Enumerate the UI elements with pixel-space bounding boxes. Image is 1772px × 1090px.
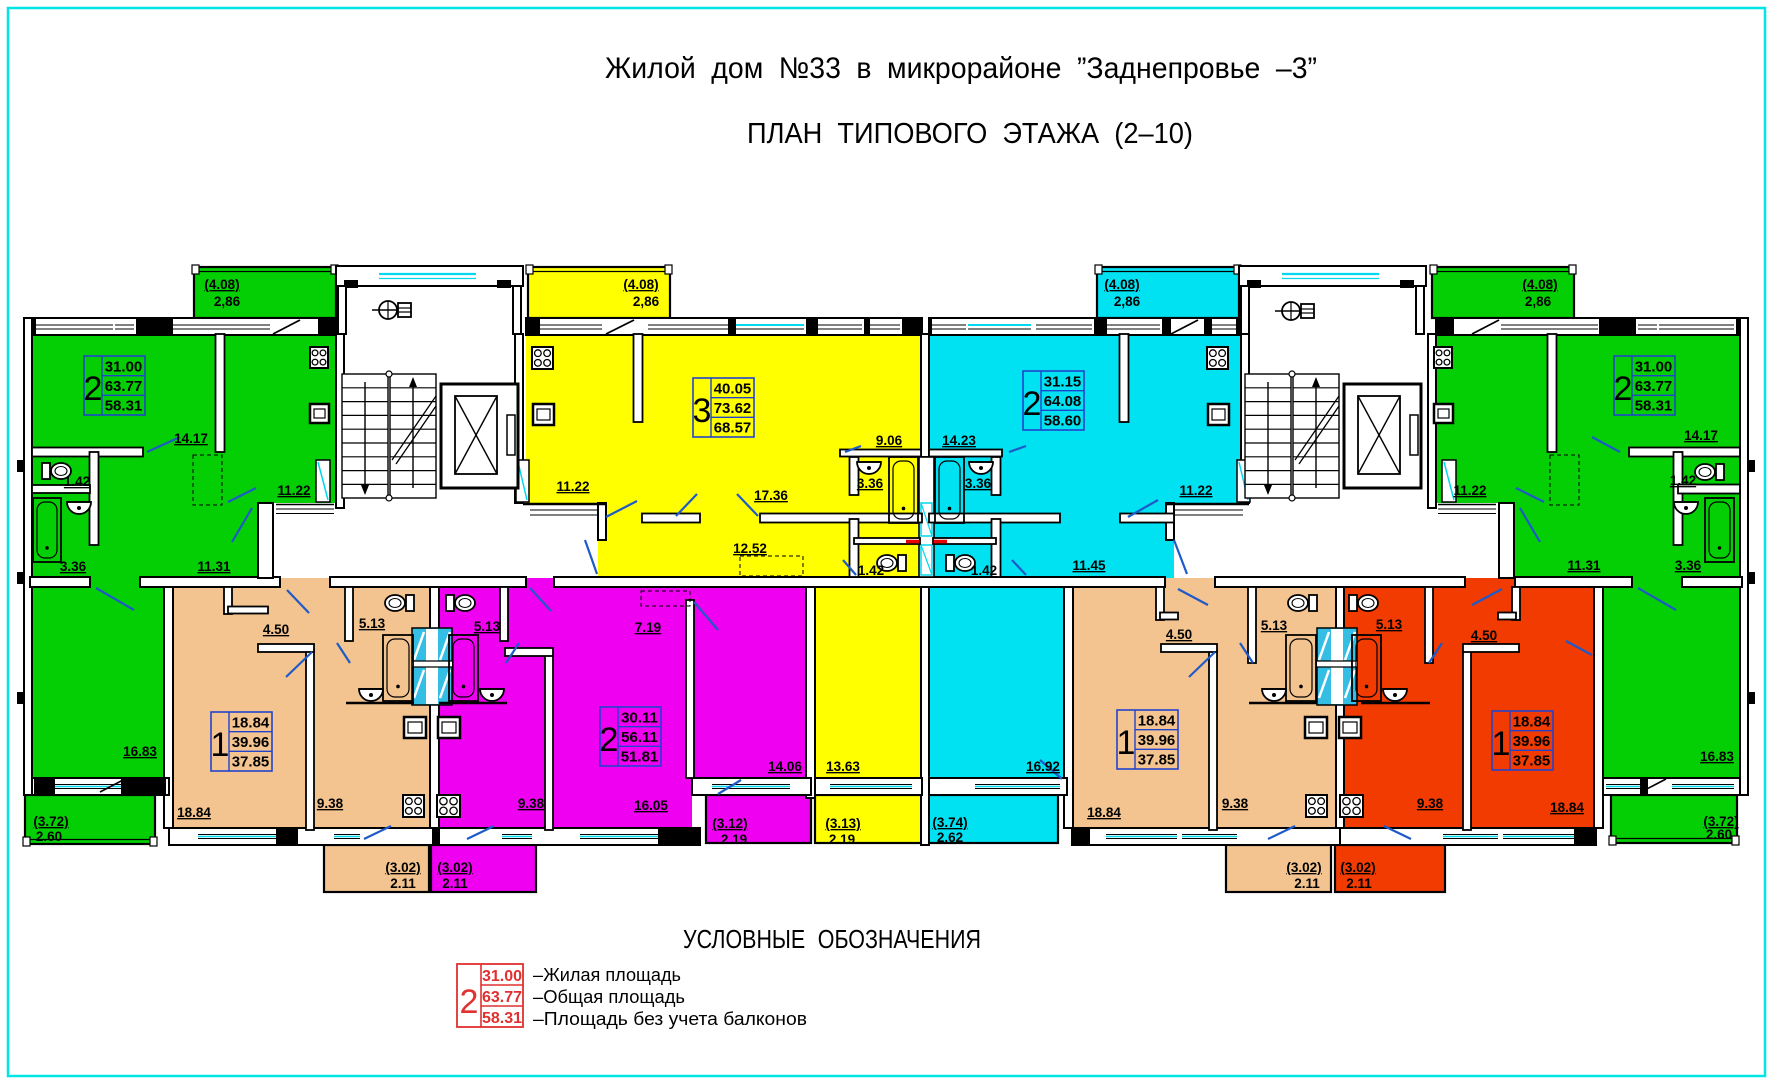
svg-text:(3.02): (3.02) <box>385 860 420 875</box>
svg-text:3.36: 3.36 <box>857 476 884 491</box>
svg-text:(3.02): (3.02) <box>437 860 472 875</box>
svg-text:2.19: 2.19 <box>721 832 747 847</box>
svg-text:17.36: 17.36 <box>754 488 788 503</box>
svg-text:4.50: 4.50 <box>1471 628 1497 643</box>
svg-text:9.06: 9.06 <box>876 433 903 448</box>
svg-text:2.60: 2.60 <box>36 829 62 844</box>
svg-text:31.15: 31.15 <box>1044 374 1082 391</box>
svg-text:1: 1 <box>211 726 230 764</box>
svg-text:37.85: 37.85 <box>232 754 270 771</box>
svg-text:1: 1 <box>1492 725 1511 763</box>
svg-text:39.96: 39.96 <box>1513 733 1551 750</box>
svg-text:63.77: 63.77 <box>1635 378 1673 395</box>
svg-text:2: 2 <box>1023 385 1042 423</box>
svg-text:18.84: 18.84 <box>1138 713 1176 730</box>
svg-text:18.84: 18.84 <box>1087 805 1121 820</box>
svg-text:16.83: 16.83 <box>123 744 157 759</box>
svg-text:63.77: 63.77 <box>105 378 143 395</box>
svg-text:11.45: 11.45 <box>1072 558 1106 573</box>
svg-text:9.38: 9.38 <box>1417 796 1444 811</box>
svg-text:30.11: 30.11 <box>621 710 658 727</box>
svg-text:12.52: 12.52 <box>733 541 767 556</box>
svg-text:13.63: 13.63 <box>826 759 860 774</box>
svg-text:14.23: 14.23 <box>942 433 976 448</box>
svg-text:УСЛОВНЫЕ ОБОЗНАЧЕНИЯ: УСЛОВНЫЕ ОБОЗНАЧЕНИЯ <box>683 924 981 954</box>
svg-text:5.13: 5.13 <box>474 619 501 634</box>
svg-text:1.42: 1.42 <box>1670 473 1696 488</box>
svg-text:1.42: 1.42 <box>64 474 90 489</box>
svg-text:7.19: 7.19 <box>635 620 661 635</box>
svg-text:2.11: 2.11 <box>1346 876 1372 891</box>
svg-text:2.11: 2.11 <box>442 876 468 891</box>
svg-text:2.60: 2.60 <box>1706 827 1732 842</box>
svg-text:58.60: 58.60 <box>1044 413 1082 430</box>
svg-text:16.92: 16.92 <box>1026 759 1060 774</box>
svg-text:11.22: 11.22 <box>1453 483 1486 498</box>
svg-text:–Жилая площадь: –Жилая площадь <box>533 965 681 985</box>
svg-text:58.31: 58.31 <box>105 398 143 415</box>
svg-text:(3.02): (3.02) <box>1340 860 1375 875</box>
svg-text:9.38: 9.38 <box>1222 796 1249 811</box>
svg-text:56.11: 56.11 <box>621 729 658 746</box>
svg-text:2,86: 2,86 <box>1525 294 1552 309</box>
svg-text:73.62: 73.62 <box>714 400 752 417</box>
svg-text:16.83: 16.83 <box>1700 749 1734 764</box>
svg-text:2: 2 <box>600 721 619 759</box>
svg-text:–Общая площадь: –Общая площадь <box>533 987 685 1007</box>
svg-text:4.50: 4.50 <box>1166 627 1192 642</box>
svg-text:2.11: 2.11 <box>1294 876 1320 891</box>
svg-text:37.85: 37.85 <box>1138 752 1176 769</box>
svg-text:64.08: 64.08 <box>1044 393 1082 410</box>
svg-text:5.13: 5.13 <box>359 616 386 631</box>
svg-text:(3.72): (3.72) <box>33 814 68 829</box>
svg-text:14.17: 14.17 <box>174 431 208 446</box>
svg-text:18.84: 18.84 <box>177 805 211 820</box>
svg-text:2: 2 <box>84 370 103 408</box>
svg-text:58.31: 58.31 <box>482 1010 522 1027</box>
svg-text:31.00: 31.00 <box>105 359 143 376</box>
svg-text:14.17: 14.17 <box>1684 428 1718 443</box>
svg-text:3.36: 3.36 <box>1675 558 1702 573</box>
svg-text:–Площадь без учета балконов: –Площадь без учета балконов <box>533 1009 807 1029</box>
svg-text:40.05: 40.05 <box>714 381 752 398</box>
svg-text:3.36: 3.36 <box>965 476 992 491</box>
svg-text:5.13: 5.13 <box>1376 617 1403 632</box>
svg-text:9.38: 9.38 <box>317 796 344 811</box>
svg-text:9.38: 9.38 <box>518 796 545 811</box>
svg-text:2.62: 2.62 <box>937 830 963 845</box>
svg-text:(3.02): (3.02) <box>1286 860 1321 875</box>
svg-text:11.22: 11.22 <box>556 479 589 494</box>
svg-text:2.11: 2.11 <box>390 876 416 891</box>
svg-text:11.31: 11.31 <box>197 559 231 574</box>
svg-text:2,86: 2,86 <box>214 294 241 309</box>
svg-text:(4.08): (4.08) <box>204 277 239 292</box>
svg-text:3: 3 <box>693 392 712 430</box>
svg-text:14.06: 14.06 <box>768 759 802 774</box>
svg-text:39.96: 39.96 <box>232 734 270 751</box>
svg-text:2: 2 <box>1614 370 1633 408</box>
svg-text:2,86: 2,86 <box>633 294 660 309</box>
svg-text:31.00: 31.00 <box>482 968 522 985</box>
svg-text:(4.08): (4.08) <box>1522 277 1557 292</box>
svg-text:(3.12): (3.12) <box>712 816 747 831</box>
svg-text:11.31: 11.31 <box>1567 558 1601 573</box>
svg-text:18.84: 18.84 <box>1550 800 1584 815</box>
svg-text:51.81: 51.81 <box>621 749 659 766</box>
svg-text:ПЛАН ТИПОВОГО ЭТАЖА (2–10): ПЛАН ТИПОВОГО ЭТАЖА (2–10) <box>747 118 1193 150</box>
svg-text:68.57: 68.57 <box>714 420 752 437</box>
svg-text:11.22: 11.22 <box>277 483 310 498</box>
svg-text:3.36: 3.36 <box>60 559 87 574</box>
svg-text:18.84: 18.84 <box>232 715 270 732</box>
svg-text:2.19: 2.19 <box>829 832 855 847</box>
svg-text:2: 2 <box>460 983 479 1021</box>
svg-text:4.50: 4.50 <box>263 622 289 637</box>
svg-text:18.84: 18.84 <box>1513 714 1551 731</box>
svg-text:63.77: 63.77 <box>482 989 522 1006</box>
svg-text:(4.08): (4.08) <box>1104 277 1139 292</box>
svg-text:1: 1 <box>1117 724 1136 762</box>
svg-text:(3.13): (3.13) <box>825 816 860 831</box>
svg-text:16.05: 16.05 <box>634 798 668 813</box>
svg-text:1.42: 1.42 <box>858 563 884 578</box>
svg-text:39.96: 39.96 <box>1138 732 1176 749</box>
svg-text:(4.08): (4.08) <box>623 277 658 292</box>
svg-text:11.22: 11.22 <box>1179 483 1212 498</box>
svg-text:2,86: 2,86 <box>1114 294 1141 309</box>
svg-text:58.31: 58.31 <box>1635 398 1673 415</box>
svg-text:37.85: 37.85 <box>1513 753 1551 770</box>
svg-text:(3.74): (3.74) <box>932 815 967 830</box>
svg-text:5.13: 5.13 <box>1261 618 1288 633</box>
svg-text:31.00: 31.00 <box>1635 359 1673 376</box>
svg-text:Жилой дом №33 в микрорайоне ”З: Жилой дом №33 в микрорайоне ”Заднепровье… <box>605 52 1317 85</box>
svg-text:1.42: 1.42 <box>971 563 997 578</box>
